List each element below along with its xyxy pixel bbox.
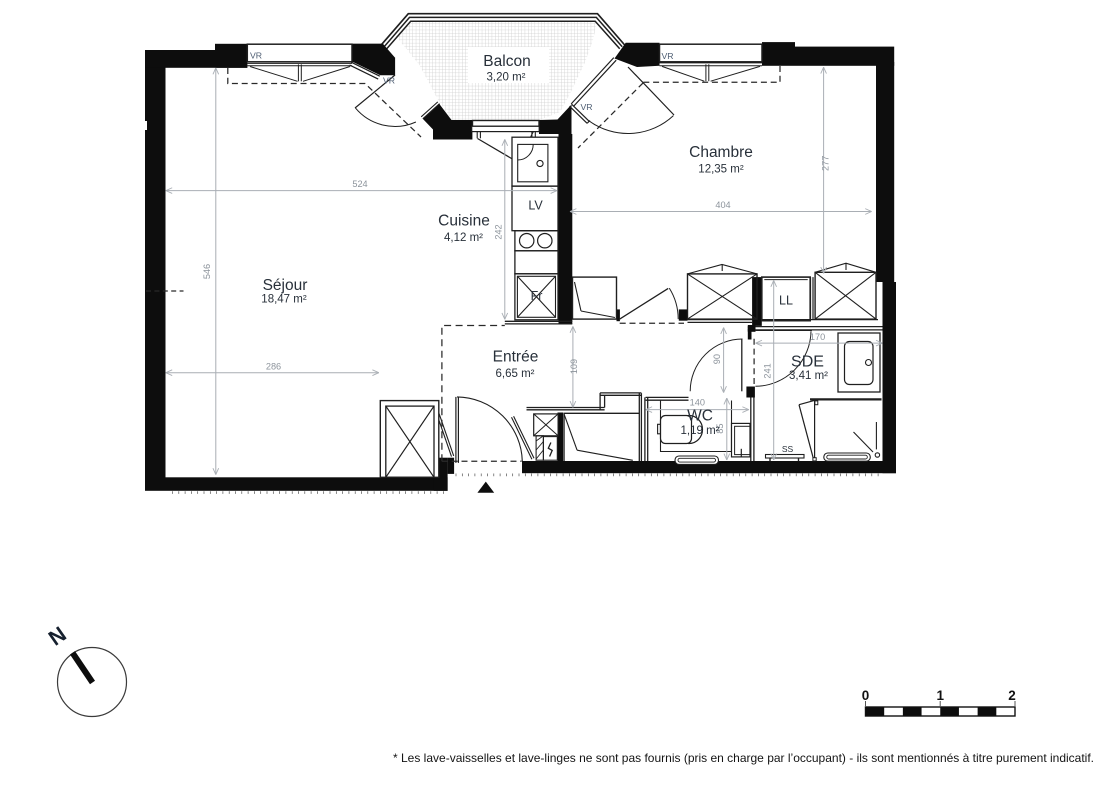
svg-text:Fr: Fr <box>531 289 543 303</box>
svg-text:VR: VR <box>250 51 262 61</box>
svg-text:Cuisine: Cuisine <box>438 213 490 230</box>
svg-text:VR: VR <box>383 76 395 86</box>
svg-text:109: 109 <box>569 359 579 374</box>
svg-text:404: 404 <box>715 200 730 210</box>
svg-text:LV: LV <box>528 199 543 213</box>
svg-text:LL: LL <box>779 294 793 308</box>
svg-text:170: 170 <box>810 332 825 342</box>
svg-text:SS: SS <box>782 444 794 454</box>
svg-text:3,20 m²: 3,20 m² <box>487 72 526 84</box>
svg-text:90: 90 <box>712 354 722 364</box>
svg-text:VR: VR <box>580 102 592 112</box>
svg-text:* Les lave-vaisselles et lave-: * Les lave-vaisselles et lave-linges ne … <box>393 751 1094 765</box>
svg-text:Séjour: Séjour <box>263 277 308 294</box>
svg-text:4,12 m²: 4,12 m² <box>444 232 483 244</box>
svg-text:241: 241 <box>762 363 772 378</box>
svg-text:3,41 m²: 3,41 m² <box>789 370 828 382</box>
svg-text:SDE: SDE <box>791 354 824 371</box>
svg-text:6,65 m²: 6,65 m² <box>496 368 535 380</box>
svg-text:0: 0 <box>862 688 870 703</box>
svg-text:2: 2 <box>1008 688 1016 703</box>
svg-text:Balcon: Balcon <box>483 53 530 70</box>
svg-text:Chambre: Chambre <box>689 144 753 161</box>
svg-text:Entrée: Entrée <box>493 349 539 366</box>
svg-text:18,47 m²: 18,47 m² <box>261 294 307 306</box>
svg-text:524: 524 <box>352 179 367 189</box>
svg-text:1,19 m²: 1,19 m² <box>681 425 720 437</box>
svg-text:546: 546 <box>202 264 212 279</box>
svg-text:286: 286 <box>266 361 281 371</box>
svg-text:140: 140 <box>690 398 705 408</box>
svg-text:1: 1 <box>936 688 944 703</box>
svg-text:277: 277 <box>820 156 830 171</box>
svg-text:VR: VR <box>661 51 673 61</box>
svg-text:242: 242 <box>493 224 503 239</box>
svg-text:12,35 m²: 12,35 m² <box>698 164 744 176</box>
svg-text:WC: WC <box>687 408 713 425</box>
